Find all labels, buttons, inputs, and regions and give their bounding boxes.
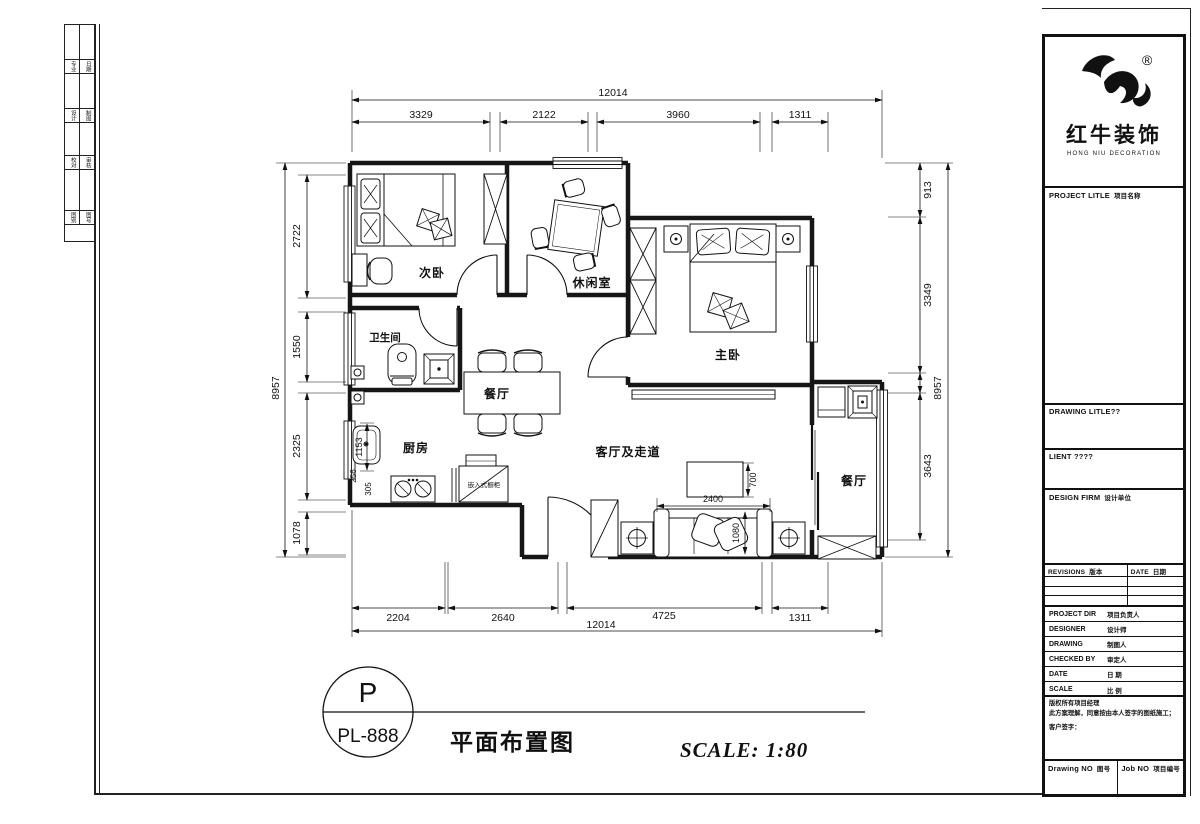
info-label-en: PROJECT DIR: [1049, 611, 1107, 618]
strip-blank-row: [65, 170, 94, 210]
notes-section: 版权所有项目经理 此方案理解，同意按由本人签字的图纸施工； 客户签字：: [1045, 695, 1183, 759]
strip-blank-row: [65, 74, 94, 108]
cabinet-label: 嵌入式橱柜: [468, 480, 501, 489]
balcony-cabinet: [818, 536, 876, 559]
strip-label-row: 校对 审核: [65, 155, 94, 170]
info-rows-section: PROJECT DIR项目负责人 DESIGNER设计师 DRAWING制图人 …: [1045, 605, 1183, 695]
drawing-title-text: 平面布置图: [450, 729, 575, 755]
revisions-label-en: REVISIONS: [1048, 569, 1085, 576]
living-furniture: [591, 390, 805, 557]
dim-sink: 1153: [354, 437, 364, 456]
strip-label: 图号: [84, 212, 90, 223]
kitchen-furniture: [353, 426, 508, 502]
dim-bottom-2: 2640: [491, 612, 515, 624]
dim-bottom-1: 2204: [386, 612, 410, 624]
info-label-en: DRAWING: [1049, 641, 1107, 648]
info-label-cn: 审定人: [1107, 654, 1127, 664]
dim-right-2: 3349: [922, 283, 934, 307]
room-label-balcony: 餐厅: [841, 473, 867, 488]
revisions-label-cn: 版本: [1089, 569, 1102, 576]
nightstand-right: [776, 226, 800, 252]
dim-bottom-4: 1311: [789, 612, 812, 624]
revisions-empty-row: [1045, 577, 1183, 587]
strip-label: 专业: [69, 61, 75, 72]
window-right-master: [807, 266, 818, 342]
dining-table: [464, 372, 560, 414]
info-label-en: DESIGNER: [1049, 626, 1107, 633]
info-row-project-dir: PROJECT DIR项目负责人: [1045, 607, 1183, 622]
nightstand-left: [664, 226, 688, 252]
info-label-en: SCALE: [1049, 686, 1107, 693]
dim-table-depth: 700: [748, 472, 758, 487]
dim-sofa-width: 2400: [703, 494, 723, 504]
drawing-title-label: DRAWING LITLE??: [1049, 407, 1120, 416]
info-label-cn: 设计师: [1107, 624, 1127, 634]
dim-sofa-depth: 1080: [731, 523, 741, 543]
room-label-kitchen: 厨房: [403, 440, 429, 455]
door-bedroom2: [457, 255, 497, 295]
design-firm-label-cn: 设计单位: [1104, 495, 1131, 502]
strip-label: 设计: [69, 110, 75, 121]
end-table-left: [621, 522, 653, 554]
room-label-bath: 卫生间: [369, 331, 401, 344]
info-label-cn: 制图人: [1107, 639, 1127, 649]
wall-drain-2: [351, 391, 364, 404]
drawing-sheet: 次卧 休闲室 主卧 卫生间 餐厅 厨房 客厅及走道 餐厅 嵌入式橱柜: [0, 0, 1200, 824]
dim-top-4: 1311: [789, 109, 812, 121]
brand-logo-icon: ®: [1068, 51, 1160, 117]
info-row-designer: DESIGNER设计师: [1045, 622, 1183, 637]
wall-drain-1: [351, 366, 364, 379]
date-col-label-en: DATE: [1131, 569, 1149, 576]
strip-label: 图别: [69, 212, 75, 223]
strip-label: 日期: [84, 61, 90, 72]
dim-top-total: 12014: [598, 87, 627, 99]
strip-label: 审核: [84, 157, 90, 168]
drawing-code-number: PL-888: [337, 726, 398, 747]
project-title-label-en: PROJECT LITLE: [1049, 191, 1110, 200]
sheet-edge-bottom: [94, 793, 1042, 795]
window-top-leisure: [553, 158, 622, 169]
info-row-drawing: DRAWING制图人: [1045, 637, 1183, 652]
master-furniture: [630, 224, 800, 334]
balcony-furniture: [818, 386, 877, 559]
client-label: LIENT ????: [1049, 452, 1093, 461]
dim-k1: 256: [349, 469, 358, 483]
info-label-cn: 比 例: [1107, 685, 1122, 695]
client-section: LIENT ????: [1045, 448, 1183, 488]
door-bath: [419, 308, 457, 346]
info-label-cn: 项目负责人: [1107, 609, 1140, 619]
dim-left-2: 1550: [291, 335, 303, 359]
sheet-edge-left-inner: [99, 24, 100, 795]
toilet: [388, 344, 416, 385]
room-label-living: 客厅及走道: [594, 444, 660, 459]
desk: [352, 254, 367, 286]
info-row-date: DATE日 期: [1045, 667, 1183, 682]
drawing-no-label-cn: 图号: [1097, 766, 1110, 773]
bath-furniture: [351, 344, 454, 404]
brand-name-cn: 红牛装饰: [1066, 119, 1162, 149]
door-master: [588, 337, 628, 377]
note-line: 客户签字：: [1049, 723, 1179, 733]
built-in-cabinet: [459, 455, 508, 502]
note-line: 版权所有项目经理: [1049, 699, 1179, 709]
revisions-header-row: REVISIONS版本 DATE日期: [1045, 565, 1183, 577]
note-line: 此方案理解，同意按由本人签字的图纸施工；: [1049, 709, 1179, 719]
drawing-title-section: DRAWING LITLE??: [1045, 403, 1183, 448]
project-title-label-cn: 项目名称: [1114, 193, 1141, 200]
dim-right-3: 3643: [922, 454, 934, 478]
coffee-table: [687, 462, 743, 497]
dim-left-3: 2325: [291, 434, 303, 458]
dim-top-3: 3960: [666, 109, 690, 121]
sheet-edge-right: [1190, 8, 1191, 796]
dim-left-total: 8957: [270, 376, 282, 400]
dim-bottom-total: 12014: [586, 619, 615, 631]
tv-cabinet: [632, 390, 775, 399]
brand-section: ® 红牛装饰 HONG NIU DECORATION: [1045, 37, 1183, 186]
drawing-number-section: Drawing NO图号 Job NO项目编号: [1045, 759, 1183, 794]
strip-blank-row: [65, 25, 94, 59]
dim-left-4: 1078: [291, 521, 303, 545]
project-title-section: PROJECT LITLE项目名称: [1045, 186, 1183, 403]
strip-label-row: 设计 制图: [65, 108, 94, 123]
strip-blank-row: [65, 123, 94, 155]
info-label-en: CHECKED BY: [1049, 656, 1107, 663]
design-firm-section: DESIGN FIRM设计单位: [1045, 488, 1183, 563]
job-no-label-en: Job NO: [1121, 764, 1149, 773]
dim-bottom-3: 4725: [652, 610, 676, 622]
door-balcony-sliding: [812, 425, 818, 530]
drawing-no-label-en: Drawing NO: [1048, 764, 1093, 773]
wardrobe2: [484, 174, 507, 244]
job-no-label-cn: 项目编号: [1153, 766, 1180, 773]
info-label-cn: 日 期: [1107, 669, 1122, 679]
floor-plan-svg: 次卧 休闲室 主卧 卫生间 餐厅 厨房 客厅及走道 餐厅 嵌入式橱柜: [0, 0, 1200, 824]
dim-left-1: 2722: [291, 224, 303, 248]
revisions-empty-row: [1045, 587, 1183, 597]
room-label-master: 主卧: [715, 347, 741, 362]
drawing-scale-text: SCALE: 1:80: [680, 738, 808, 762]
shoe-cabinet: [591, 500, 618, 557]
drawing-code-letter: P: [359, 677, 378, 708]
registered-mark: ®: [1142, 52, 1153, 68]
info-row-checked-by: CHECKED BY审定人: [1045, 652, 1183, 667]
door-leisure: [527, 255, 567, 295]
stove: [391, 476, 435, 502]
sofa: [654, 509, 772, 557]
brand-name-en: HONG NIU DECORATION: [1067, 151, 1161, 157]
sheet-edge-top-right: [1042, 8, 1190, 9]
design-firm-label-en: DESIGN FIRM: [1049, 493, 1100, 502]
dim-top-2: 2122: [532, 109, 556, 121]
end-table-right: [773, 522, 805, 554]
washing-machine: [818, 387, 845, 417]
chair: [370, 258, 392, 284]
dim-k2: 305: [364, 482, 373, 496]
room-label-bedroom2: 次卧: [419, 265, 445, 280]
mop-basin: [848, 386, 877, 418]
signature-strip: 专业 日期 设计 制图 校对 审核 图别 图号: [64, 24, 95, 242]
room-label-dining: 餐厅: [484, 386, 510, 401]
strip-label: 制图: [84, 110, 90, 121]
leisure-furniture: [530, 178, 621, 272]
title-bar: P PL-888 平面布置图 SCALE: 1:80: [323, 667, 865, 762]
dim-right-total: 8957: [932, 376, 944, 400]
strip-label: 校对: [69, 157, 75, 168]
dim-right-1: 913: [922, 181, 934, 199]
title-block: ® 红牛装饰 HONG NIU DECORATION PROJECT LITLE…: [1042, 34, 1186, 797]
window-right-balcony: [877, 390, 888, 547]
strip-label-row: 图别 图号: [65, 210, 94, 225]
date-col-label-cn: 日期: [1153, 569, 1166, 576]
furniture: [351, 174, 877, 559]
room-label-leisure: 休闲室: [571, 275, 611, 290]
dim-top-1: 3329: [409, 109, 433, 121]
shower-drain: [424, 354, 454, 384]
info-label-en: DATE: [1049, 671, 1107, 678]
dining-furniture: [464, 350, 560, 436]
strip-label-row: 专业 日期: [65, 59, 94, 74]
revisions-table: REVISIONS版本 DATE日期: [1045, 563, 1183, 605]
wardrobe-master: [630, 228, 656, 334]
